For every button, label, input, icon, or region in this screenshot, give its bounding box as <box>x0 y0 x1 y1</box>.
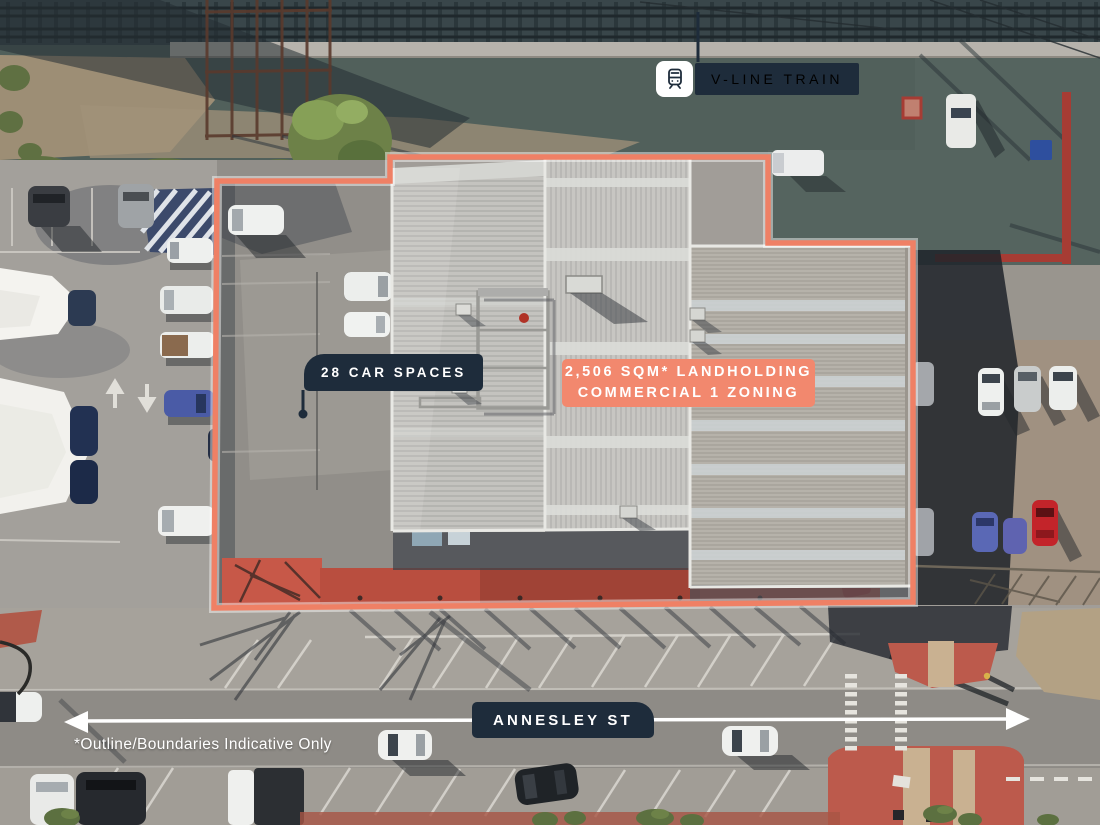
landholding-label: 2,506 SQM* LANDHOLDING COMMERCIAL 1 ZONI… <box>562 359 815 407</box>
car-spaces-label: 28 CAR SPACES <box>304 354 483 391</box>
street-name-label: ANNESLEY ST <box>472 702 654 738</box>
disclaimer-text: *Outline/Boundaries Indicative Only <box>74 736 332 754</box>
aerial-property-photo: V-LINE TRAIN 28 CAR SPACES 2,506 SQM* LA… <box>0 0 1100 825</box>
vline-train-text: V-LINE TRAIN <box>695 63 859 95</box>
landholding-line2: COMMERCIAL 1 ZONING <box>578 383 800 404</box>
blue-bin <box>1030 140 1052 160</box>
landholding-line1: 2,506 SQM* LANDHOLDING <box>565 362 812 383</box>
right-parking <box>912 250 1100 605</box>
train-icon <box>656 61 693 97</box>
vline-train-label: V-LINE TRAIN <box>656 61 859 97</box>
